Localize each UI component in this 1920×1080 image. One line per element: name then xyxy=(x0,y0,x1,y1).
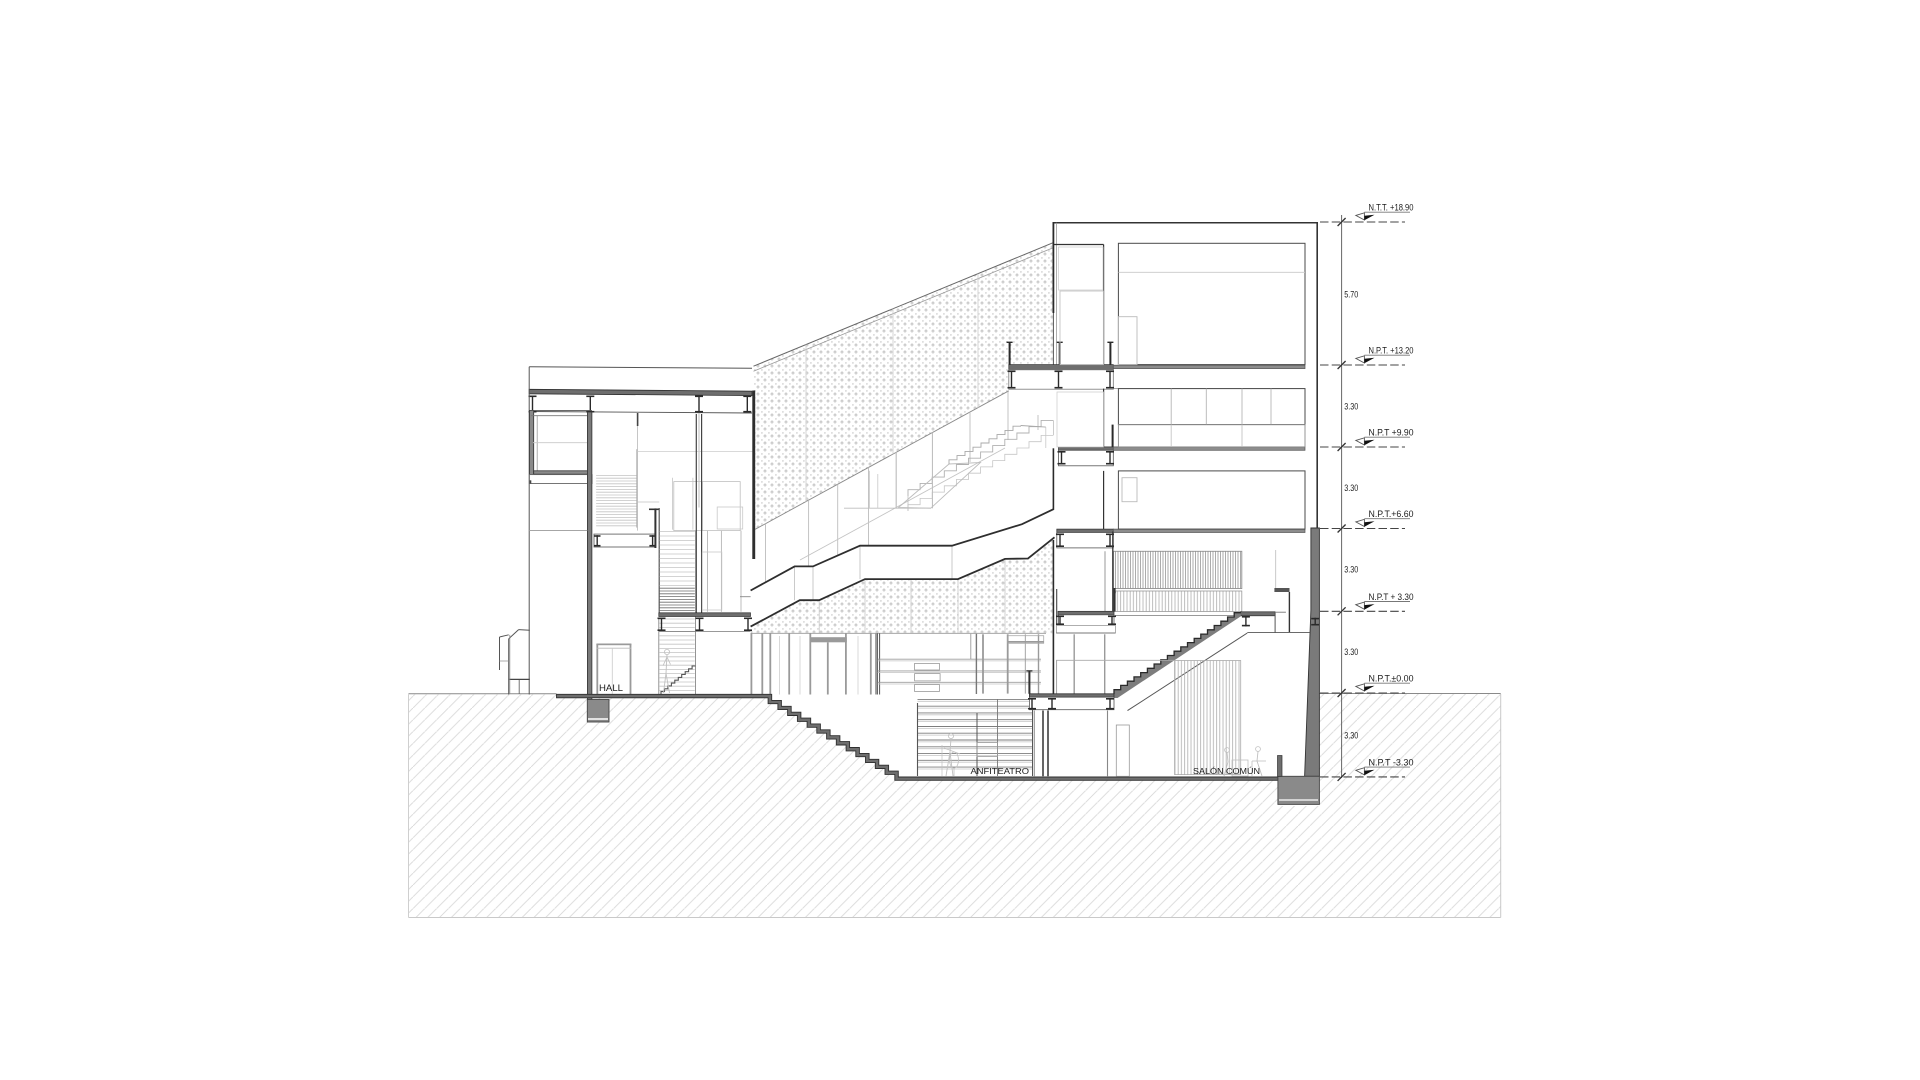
svg-text:3.30: 3.30 xyxy=(1344,647,1358,657)
svg-text:N.P.T.+6.60: N.P.T.+6.60 xyxy=(1369,509,1414,519)
svg-text:ANFITEATRO: ANFITEATRO xyxy=(971,766,1030,776)
svg-text:N.P.T -3.30: N.P.T -3.30 xyxy=(1369,757,1414,767)
svg-text:N.P.T.±0.00: N.P.T.±0.00 xyxy=(1369,674,1414,684)
svg-text:3.30: 3.30 xyxy=(1344,402,1358,412)
svg-text:HALL: HALL xyxy=(599,683,623,693)
svg-text:SALÓN COMÚN: SALÓN COMÚN xyxy=(1193,766,1260,776)
svg-text:3.30: 3.30 xyxy=(1344,483,1358,493)
svg-text:N.P.T. +13.20: N.P.T. +13.20 xyxy=(1369,346,1414,356)
svg-text:N.P.T + 3.30: N.P.T + 3.30 xyxy=(1369,592,1414,602)
svg-text:3.30: 3.30 xyxy=(1344,565,1358,575)
svg-text:N.T.T. +18.90: N.T.T. +18.90 xyxy=(1369,203,1414,213)
svg-text:N.P.T +9.90: N.P.T +9.90 xyxy=(1369,428,1414,438)
svg-text:5.70: 5.70 xyxy=(1344,290,1358,300)
svg-text:3.30: 3.30 xyxy=(1344,731,1358,741)
